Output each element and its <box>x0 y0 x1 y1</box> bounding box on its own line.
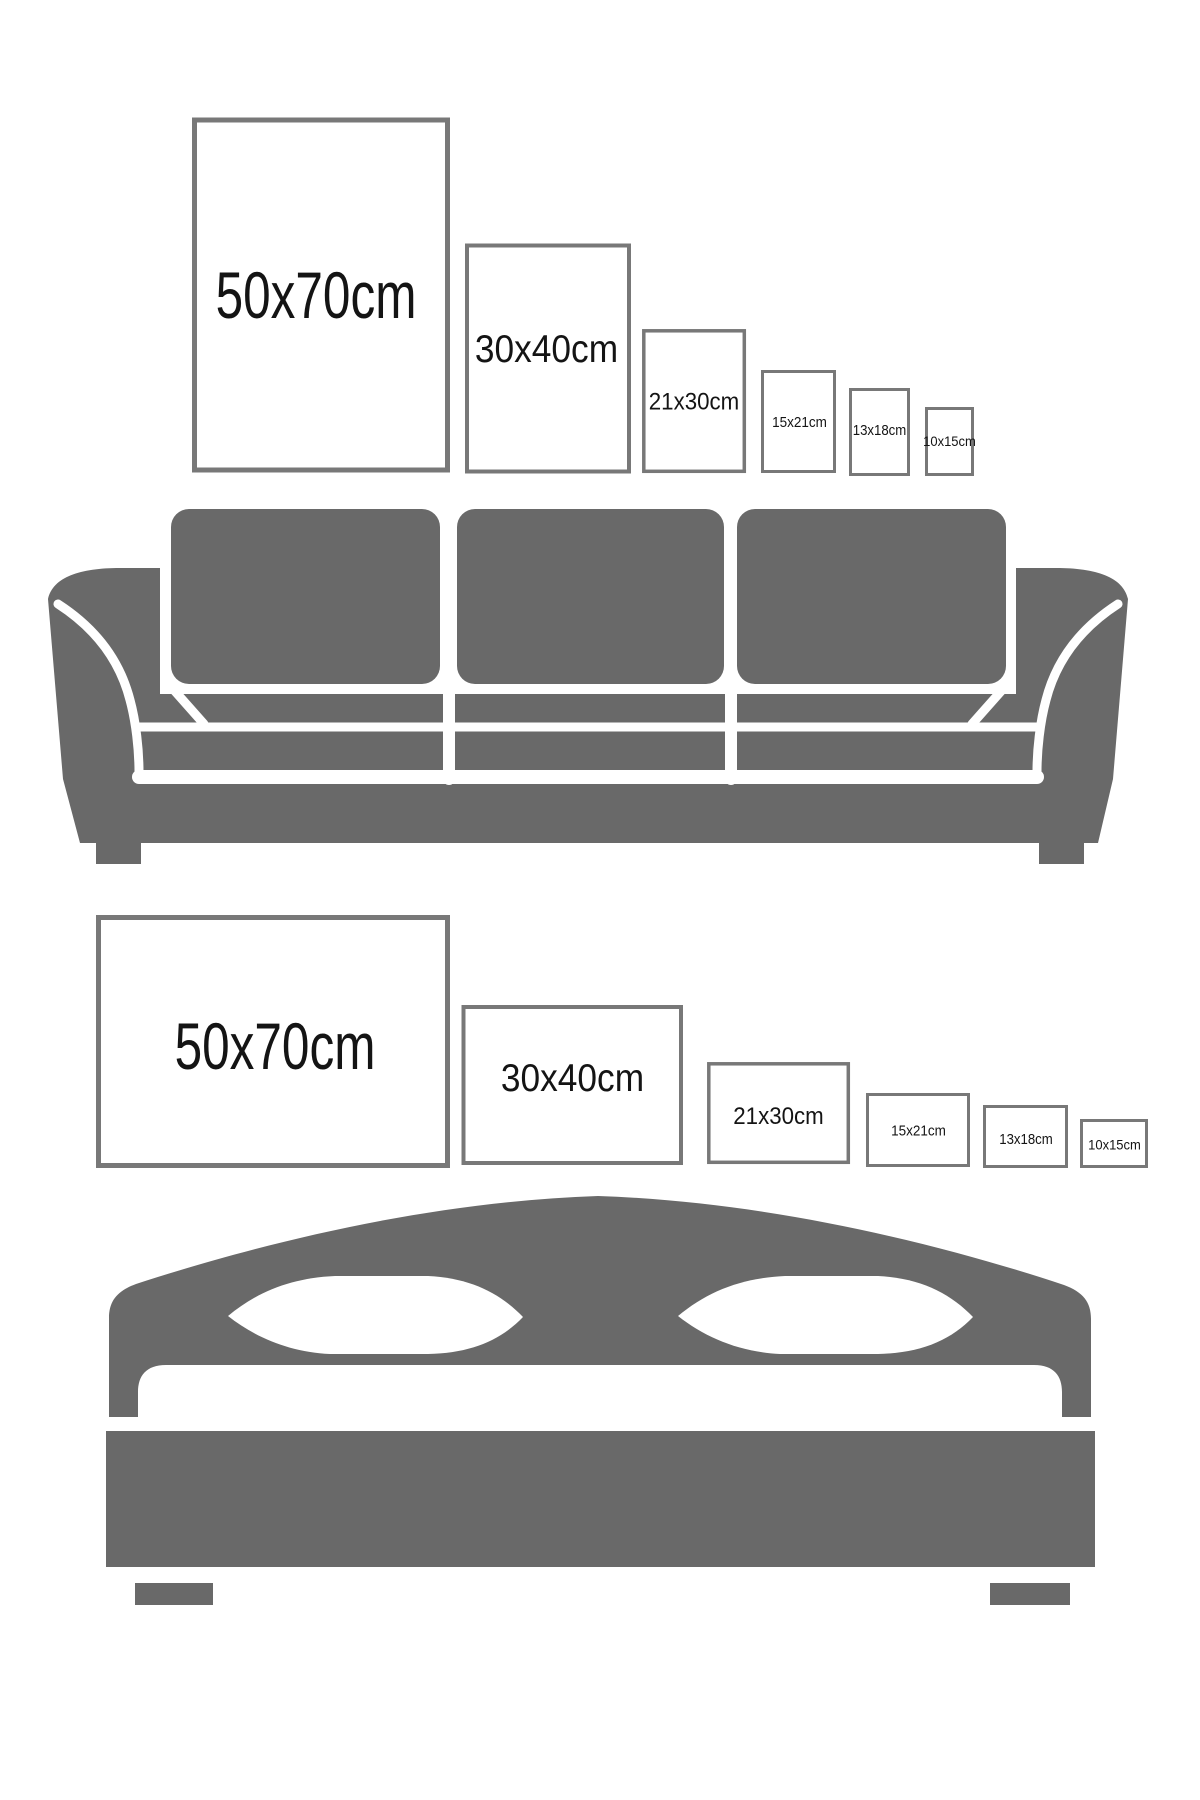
svg-text:21x30cm: 21x30cm <box>649 388 739 415</box>
svg-text:15x21cm: 15x21cm <box>772 414 827 431</box>
svg-text:13x18cm: 13x18cm <box>853 421 907 438</box>
svg-text:10x15cm: 10x15cm <box>923 434 976 449</box>
svg-text:30x40cm: 30x40cm <box>501 1055 644 1099</box>
svg-text:21x30cm: 21x30cm <box>733 1102 823 1129</box>
svg-text:50x70cm: 50x70cm <box>175 1010 376 1083</box>
svg-text:15x21cm: 15x21cm <box>891 1123 946 1140</box>
svg-text:30x40cm: 30x40cm <box>475 326 618 370</box>
svg-text:50x70cm: 50x70cm <box>216 259 417 332</box>
svg-text:13x18cm: 13x18cm <box>999 1130 1053 1147</box>
svg-text:10x15cm: 10x15cm <box>1088 1137 1141 1152</box>
